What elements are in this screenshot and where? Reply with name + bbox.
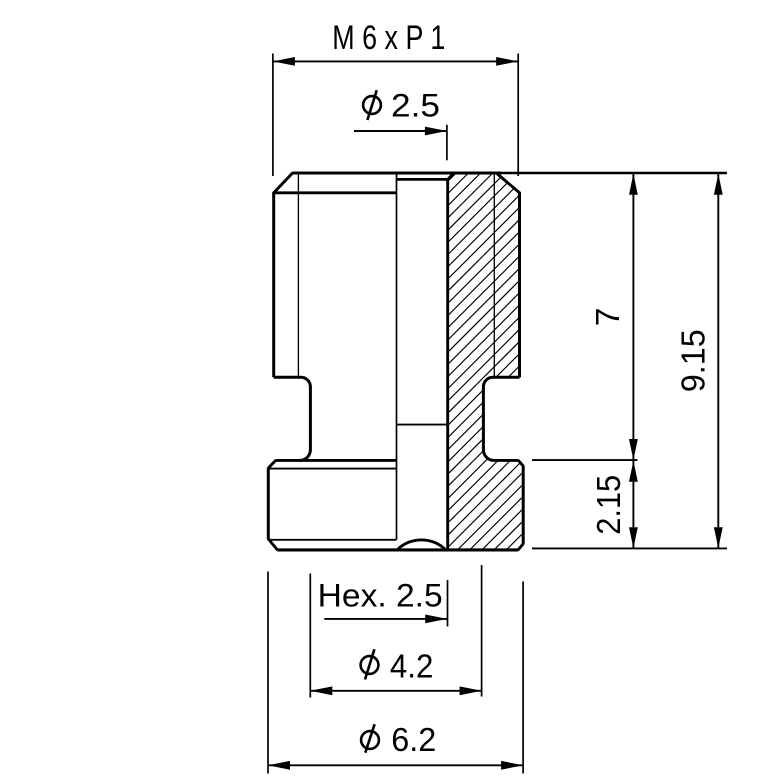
svg-text:Hex. 2.5: Hex. 2.5 <box>318 578 443 614</box>
svg-text:4.2: 4.2 <box>390 647 434 684</box>
svg-text:2.15: 2.15 <box>591 475 628 535</box>
svg-text:2.5: 2.5 <box>391 88 440 124</box>
svg-text:9.15: 9.15 <box>676 329 713 392</box>
svg-text:6.2: 6.2 <box>391 721 436 758</box>
svg-text:7: 7 <box>590 308 627 327</box>
svg-text:M 6 x P 1: M 6 x P 1 <box>332 19 445 57</box>
